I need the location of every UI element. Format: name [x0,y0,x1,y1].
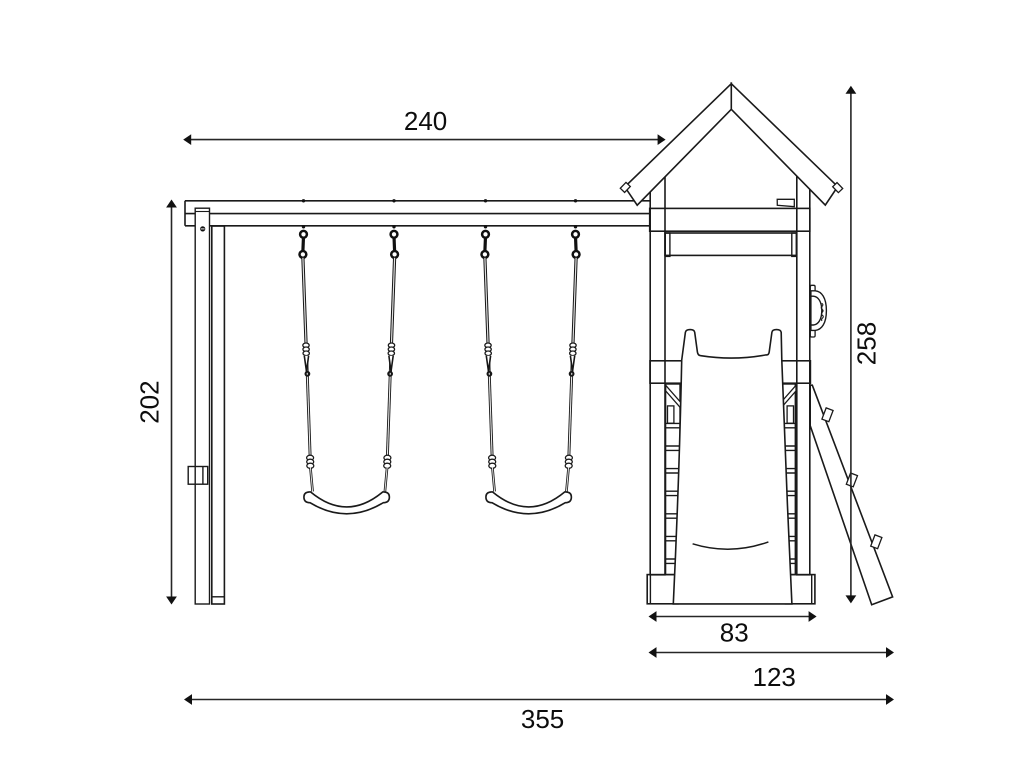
svg-text:123: 123 [753,662,796,692]
svg-text:83: 83 [720,618,749,648]
svg-text:202: 202 [135,380,165,423]
svg-text:258: 258 [851,322,881,365]
svg-text:240: 240 [404,106,447,136]
svg-text:355: 355 [521,704,564,734]
